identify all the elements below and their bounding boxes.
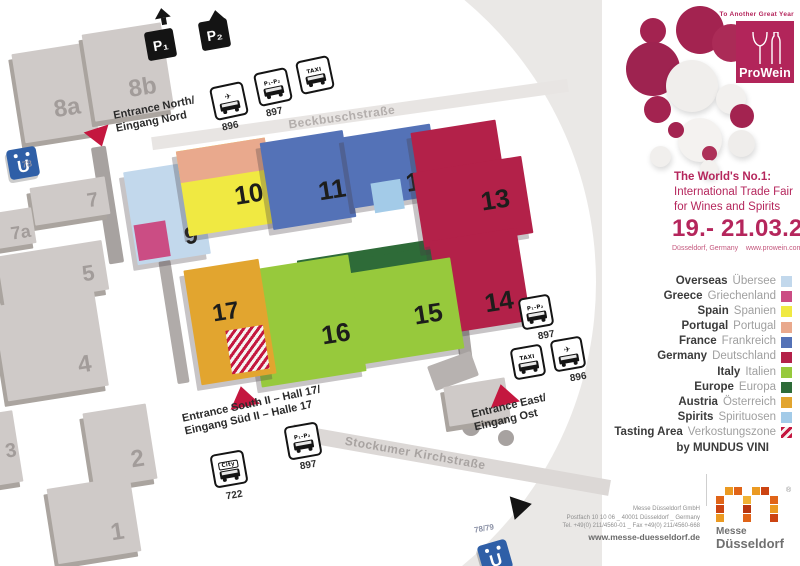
legend-swatch [781, 291, 792, 302]
messe-duesseldorf-logo: Messe Düsseldorf [716, 487, 784, 550]
legend-de: Griechenland [708, 291, 776, 303]
legend-row: Tasting AreaVerkostungszone [600, 427, 792, 439]
legend-de: Verkostungszone [688, 427, 776, 439]
legend-en: Tasting Area [614, 427, 682, 439]
hall-10-number: 10 [232, 177, 265, 212]
legend-en: Spain [697, 306, 728, 318]
legend-swatch-hatch [781, 427, 792, 438]
hall-2-label: 2 [129, 445, 147, 475]
hall-11-number: 11 [316, 172, 348, 207]
legend-en: Greece [664, 291, 703, 303]
legend-row: EuropeEuropa [600, 382, 792, 394]
shuttle-bus-icon: P₁-P₂ [517, 293, 554, 330]
prowein-map-page: 8a 8b 7 7a 5 4 3 2 1 9 10 11 12 13 14 15 [0, 0, 800, 566]
hall-4-label: 4 [76, 350, 94, 380]
bubble [666, 60, 718, 112]
shuttle-bus-icon: P₁-P₂ [283, 421, 322, 460]
headline-line3: for Wines and Spirits [674, 200, 780, 215]
legend-row: OverseasÜbersee [600, 276, 792, 288]
legend-row: FranceFrankreich [600, 336, 792, 348]
address-line2: Postfach 10 10 06 _ 40001 Düsseldorf _ G… [515, 514, 700, 523]
legend-en: Spirits [678, 412, 714, 424]
taxi-icon: TAXI [509, 343, 546, 380]
legend-row: SpainSpanien [600, 306, 792, 318]
hall-2: 2 [82, 403, 157, 488]
hall-9-greece-area [134, 220, 171, 261]
shuttle-bus-icon: P₁-P₂ [253, 67, 293, 107]
address-line3: Tel. +49(0) 211/4560-01 _ Fax +49(0) 211… [515, 522, 700, 531]
headline-line2: International Trade Fair [674, 185, 793, 200]
taxi-icon: TAXI [295, 55, 335, 95]
legend-swatch [781, 397, 792, 408]
legend-en: Germany [657, 351, 707, 363]
legend-extra: by MUNDUS VINI [600, 442, 792, 454]
bubble [730, 104, 754, 128]
legend-row: AustriaÖsterreich [600, 397, 792, 409]
parking-p1-label: P₁ [152, 35, 170, 53]
airport-bus-icon: ✈ [209, 81, 249, 121]
legend-row: GermanyDeutschland [600, 351, 792, 363]
legend-swatch [781, 276, 792, 287]
legend-de: Spanien [734, 306, 776, 318]
prowein-logo-text: ProWein [739, 66, 791, 80]
legend: OverseasÜbersee GreeceGriechenland Spain… [600, 276, 792, 454]
legend-row: SpiritsSpirituosen [600, 412, 792, 424]
legend-row: ItalyItalien [600, 367, 792, 379]
bus-glyph [558, 353, 579, 364]
airport-bus-icon: ✈ [549, 335, 586, 372]
registered-mark: ® [786, 487, 791, 494]
hall-11: 11 [260, 130, 357, 230]
legend-de: Spirituosen [718, 412, 776, 424]
bubble [702, 146, 717, 161]
hall-7a-label: 7a [9, 221, 32, 245]
plane-icon: ✈ [224, 92, 232, 101]
bubble [640, 18, 666, 44]
event-dates: 19.- 21.03.2017 [672, 215, 800, 243]
hall-17-tasting-area [225, 325, 269, 374]
city-bus-icon: City [209, 449, 248, 488]
footer-divider [706, 474, 707, 506]
hall-4: 4 [0, 291, 109, 402]
wine-glass-bottle-icon [745, 32, 785, 66]
legend-de: Deutschland [712, 351, 776, 363]
hall-1: 1 [47, 476, 142, 564]
bubble [644, 96, 671, 123]
hall-12-spirits-area [370, 179, 404, 213]
messe-wordmark-line2: Düsseldorf [716, 537, 784, 550]
hall-8a-label: 8a [52, 92, 83, 124]
hall-3-label: 3 [4, 439, 19, 463]
legend-swatch [781, 337, 792, 348]
legend-en: Austria [678, 397, 718, 409]
website-url: www.messe-duesseldorf.de [515, 533, 700, 542]
legend-row: GreeceGriechenland [600, 291, 792, 303]
legend-en: Europe [694, 382, 734, 394]
legend-en: France [679, 336, 717, 348]
hall-13-number: 13 [479, 182, 512, 217]
metro-78-label: 78 [21, 158, 33, 170]
legend-swatch [781, 352, 792, 363]
messe-pixel-m-icon [716, 487, 784, 522]
footer-address: Messe Düsseldorf GmbH Postfach 10 10 06 … [515, 505, 700, 541]
bubble [728, 130, 755, 157]
parking-p1-icon: P₁ [144, 28, 178, 62]
legend-de: Übersee [733, 276, 776, 288]
legend-en: Portugal [682, 321, 729, 333]
hall-17-number: 17 [210, 297, 241, 329]
hall-1-label: 1 [109, 518, 127, 548]
legend-swatch [781, 382, 792, 393]
hall-16-number: 16 [319, 316, 352, 351]
hall-15-number: 15 [411, 296, 444, 331]
hall-7a: 7a [0, 207, 37, 249]
prowein-logo: ProWein [736, 21, 794, 83]
legend-swatch [781, 306, 792, 317]
legend-row: PortugalPortugal [600, 321, 792, 333]
parking-p2-label: P₂ [205, 25, 223, 43]
plane-icon: ✈ [563, 345, 571, 354]
legend-swatch [781, 322, 792, 333]
legend-swatch [781, 367, 792, 378]
hall-5-label: 5 [80, 260, 96, 288]
legend-de: Österreich [723, 397, 776, 409]
legend-de: Italien [745, 367, 776, 379]
bus-glyph [219, 99, 240, 111]
bubble [650, 146, 671, 167]
hall-7-label: 7 [85, 189, 100, 213]
hall-14-number: 14 [482, 284, 515, 319]
bubble [668, 122, 684, 138]
event-subline: Düsseldorf, Germany www.prowein.com [672, 245, 800, 252]
address-line1: Messe Düsseldorf GmbH [515, 505, 700, 514]
legend-en: Italy [717, 367, 740, 379]
legend-de: Frankreich [722, 336, 776, 348]
legend-de: Europa [739, 382, 776, 394]
headline-line1: The World's No.1: [674, 170, 771, 185]
legend-swatch [781, 412, 792, 423]
parking-p2-icon: P₂ [198, 18, 232, 52]
structure [498, 430, 514, 446]
legend-de: Portugal [733, 321, 776, 333]
hall-8b-label: 8b [127, 72, 159, 104]
legend-en: Overseas [676, 276, 728, 288]
